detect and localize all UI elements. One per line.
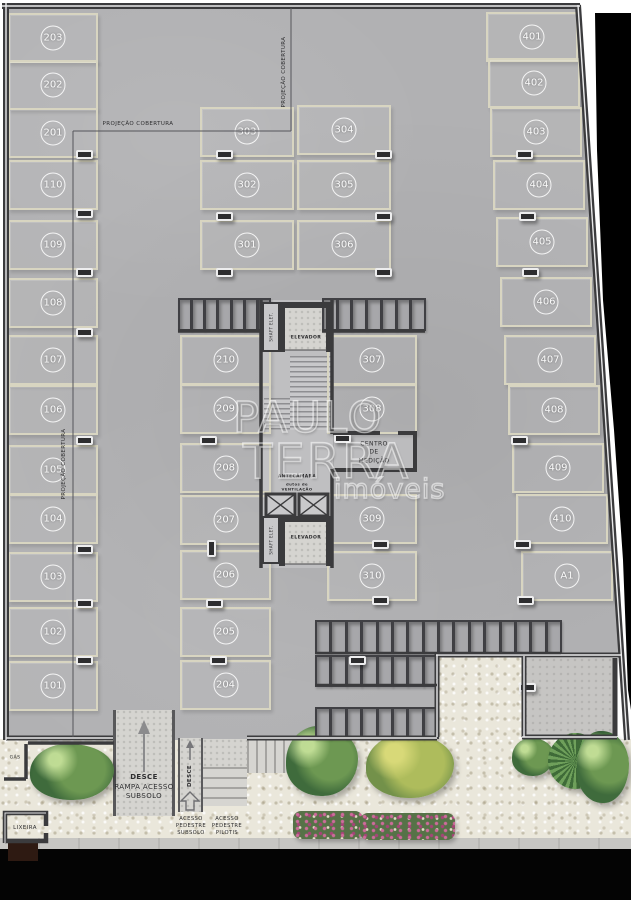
storage-stall [377, 620, 393, 654]
pillar [511, 436, 528, 445]
parking-space: 402 [488, 58, 580, 108]
parking-space: 310 [327, 551, 417, 601]
antechamber-label: ANTECÂMARA [278, 475, 316, 480]
space-number: 308 [360, 397, 385, 422]
parking-space: 409 [512, 443, 604, 493]
storage-stall [178, 298, 192, 331]
space-number: 303 [235, 120, 260, 145]
access-subsolo-1: ACESSO [179, 816, 202, 822]
storage-stall [500, 620, 516, 654]
space-number: 107 [41, 348, 66, 373]
storage-stall [191, 298, 205, 331]
patio-path [437, 655, 523, 740]
storage-stall [361, 707, 377, 739]
parking-space: 410 [516, 494, 608, 544]
driveway-patch [8, 840, 38, 861]
parking-space: 206 [180, 550, 271, 600]
access-subsolo-2: PEDESTRE [176, 823, 206, 829]
parking-space: 303 [200, 107, 294, 157]
pillar [375, 212, 392, 221]
storage-stall [366, 298, 382, 331]
flowerbed-left [293, 811, 363, 839]
parking-space: 301 [200, 220, 294, 270]
gas-room-label: GÁS [10, 756, 21, 761]
space-number: 407 [538, 348, 563, 373]
parking-space: 102 [8, 607, 98, 657]
space-number: 409 [546, 456, 571, 481]
trash-room-label: LIXEIRA [13, 825, 37, 831]
ramp-label-2: RAMPA ACESSO [114, 783, 173, 791]
space-number: 305 [332, 173, 357, 198]
storage-stall [346, 620, 362, 654]
space-number: 203 [41, 26, 66, 51]
parking-space: 403 [490, 107, 582, 157]
storage-stall [530, 620, 546, 654]
storage-stall [423, 655, 439, 687]
pillar [514, 540, 531, 549]
parking-space: 302 [200, 160, 294, 210]
patio-pad [524, 658, 616, 737]
pillar [522, 268, 539, 277]
space-number: 205 [213, 620, 238, 645]
parking-space: 309 [327, 494, 417, 544]
pillar [207, 540, 216, 557]
storage-stall [330, 707, 346, 739]
pillar [206, 599, 223, 608]
space-number: 201 [41, 121, 66, 146]
space-number: 206 [213, 563, 238, 588]
parking-space: 308 [327, 384, 417, 434]
stairwell [290, 356, 332, 430]
pillar [76, 328, 93, 337]
storage-stall [315, 620, 331, 654]
parking-space: 404 [493, 160, 585, 210]
parking-space: 207 [180, 495, 271, 545]
metering-label-1: CENTRO [360, 441, 387, 448]
storage-stall [377, 655, 393, 687]
parking-space: A1 [521, 551, 613, 601]
flowerbed-right [360, 813, 455, 840]
storage-stall [231, 298, 245, 331]
projection-label-vertical-right: PROJEÇÃO COBERTURA [281, 37, 287, 108]
space-number: 307 [360, 348, 385, 373]
parking-space: 406 [500, 277, 592, 327]
metering-label-2: DE [369, 449, 378, 456]
yellow-bush [366, 734, 454, 798]
pillar [517, 596, 534, 605]
shaft-bottom-label: SHAFT ELET. [269, 525, 274, 554]
parking-space: 305 [297, 160, 391, 210]
ramp-label-3: SUBSOLO [126, 792, 162, 800]
pillar [349, 656, 366, 665]
storage-stall [381, 298, 397, 331]
shaft-top-label: SHAFT ELET. [269, 312, 274, 341]
pillar [76, 436, 93, 445]
space-number: 207 [213, 508, 238, 533]
pillar [519, 683, 536, 692]
space-number: 108 [41, 291, 66, 316]
space-number: 410 [550, 507, 575, 532]
projection-label-horizontal: PROJEÇÃO COBERTURA [103, 121, 174, 127]
stair-landing [203, 739, 247, 767]
space-number: 309 [360, 507, 385, 532]
storage-stall [361, 620, 377, 654]
space-number: 103 [41, 565, 66, 590]
parking-space: 106 [8, 385, 98, 435]
parking-space: 210 [180, 335, 271, 385]
parking-space: 104 [8, 494, 98, 544]
storage-stall [423, 620, 439, 654]
access-pilotis-3: PILOTIS [216, 830, 238, 836]
parking-space: 209 [180, 384, 271, 434]
pillar [76, 656, 93, 665]
space-number: 110 [41, 173, 66, 198]
storage-stall [322, 298, 338, 331]
space-number: 210 [213, 348, 238, 373]
pillar [76, 545, 93, 554]
parking-space: 109 [8, 220, 98, 270]
storage-stall [330, 655, 346, 687]
parking-space: 407 [504, 335, 596, 385]
space-number: 405 [530, 230, 555, 255]
space-number: 104 [41, 507, 66, 532]
ducts-label-2: VENTILAÇÃO [281, 487, 312, 492]
parking-space: 108 [8, 278, 98, 328]
parking-space: 401 [486, 12, 578, 62]
pillar [216, 212, 233, 221]
storage-stall [315, 655, 331, 687]
planter-bush [30, 744, 114, 800]
access-subsolo-3: SUBSOLO [177, 830, 205, 836]
access-pilotis-2: PEDESTRE [212, 823, 242, 829]
space-number: 204 [213, 673, 238, 698]
pillar [216, 268, 233, 277]
storage-stall [546, 620, 562, 654]
space-number: 102 [41, 620, 66, 645]
parking-space: 304 [297, 105, 391, 155]
pillar [334, 434, 351, 443]
space-number: 101 [41, 674, 66, 699]
space-number: 106 [41, 398, 66, 423]
storage-stall [217, 298, 231, 331]
space-number: 403 [524, 120, 549, 145]
space-number: 302 [235, 173, 260, 198]
storage-stall [484, 620, 500, 654]
storage-stall [515, 620, 531, 654]
parking-space: 208 [180, 443, 271, 493]
street-band [0, 849, 631, 900]
pillar [210, 656, 227, 665]
storage-stall [204, 298, 218, 331]
parking-space: 405 [496, 217, 588, 267]
space-number: 401 [520, 25, 545, 50]
storage-stall [346, 707, 362, 739]
parking-space: 101 [8, 661, 98, 711]
storage-stall [351, 298, 367, 331]
ramp-subsolo [113, 710, 175, 816]
storage-stall [410, 298, 426, 331]
pillar [76, 599, 93, 608]
pillar [76, 268, 93, 277]
pillar [519, 212, 536, 221]
storage-stall [469, 620, 485, 654]
parking-space: 203 [8, 13, 98, 63]
storage-stall [407, 620, 423, 654]
parking-space: 306 [297, 220, 391, 270]
outdoor-stairs-down [203, 767, 247, 806]
parking-space: 110 [8, 160, 98, 210]
parking-space: 408 [508, 385, 600, 435]
parking-space: 103 [8, 552, 98, 602]
storage-stall [330, 620, 346, 654]
space-number: 310 [360, 564, 385, 589]
space-number: 402 [522, 71, 547, 96]
parking-space: 204 [180, 660, 271, 710]
pillar [516, 150, 533, 159]
space-number: 209 [213, 397, 238, 422]
elevator-top-label: ELEVADOR [291, 336, 321, 341]
space-number: 208 [213, 456, 238, 481]
storage-stall [392, 620, 408, 654]
pillar [76, 209, 93, 218]
space-number: 109 [41, 233, 66, 258]
space-number: 408 [542, 398, 567, 423]
projection-label-vertical-left: PROJEÇÃO COBERTURA [61, 429, 67, 500]
elevator-bottom-cab [282, 518, 330, 564]
storage-stall [407, 707, 423, 739]
space-number: 304 [332, 118, 357, 143]
storage-stall [396, 298, 412, 331]
pillar [200, 436, 217, 445]
storage-stall [315, 707, 331, 739]
floor-plan: 2032022011101091081071061051041031021013… [0, 0, 631, 900]
parking-space: 105 [8, 445, 98, 495]
storage-stall [337, 298, 353, 331]
storage-stall [244, 298, 258, 331]
pillar [76, 150, 93, 159]
pillar [375, 268, 392, 277]
storage-stall [392, 707, 408, 739]
pillar [375, 150, 392, 159]
pillar [216, 150, 233, 159]
pillar [372, 596, 389, 605]
space-number: 202 [41, 73, 66, 98]
storage-stall [377, 707, 393, 739]
elevator-bottom-label: ELEVADOR [291, 536, 321, 541]
parking-space: 202 [8, 60, 98, 110]
ramp-label-1: DESCE [130, 773, 158, 781]
metering-label-3: MEDIÇÃO [358, 458, 389, 465]
walkway-label: DESCE [187, 765, 193, 787]
space-number: 306 [332, 233, 357, 258]
access-pilotis-1: ACESSO [215, 816, 238, 822]
pillar [372, 540, 389, 549]
space-number: 406 [534, 290, 559, 315]
space-number: A1 [555, 564, 580, 589]
parking-space: 307 [327, 335, 417, 385]
storage-stall [392, 655, 408, 687]
right-tree [577, 731, 629, 803]
storage-stall [407, 655, 423, 687]
storage-stall [423, 707, 439, 739]
space-number: 301 [235, 233, 260, 258]
storage-stall [438, 620, 454, 654]
parking-space: 107 [8, 335, 98, 385]
space-number: 404 [527, 173, 552, 198]
parking-space: 205 [180, 607, 271, 657]
storage-stall [453, 620, 469, 654]
